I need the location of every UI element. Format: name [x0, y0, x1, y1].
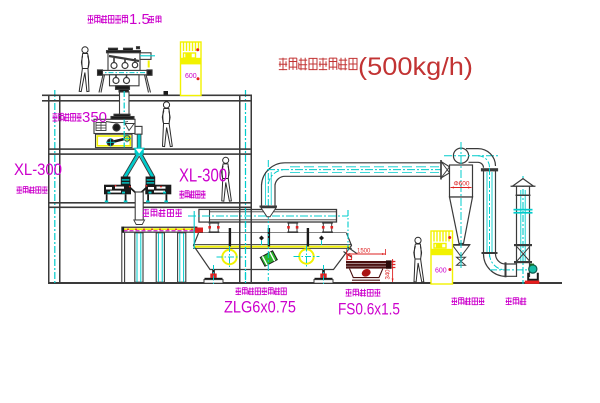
svg-text:XL-300: XL-300: [179, 166, 227, 186]
svg-text:XL-300: XL-300: [14, 160, 62, 179]
svg-text:FS0.6x1.5: FS0.6x1.5: [338, 300, 400, 319]
svg-text:350: 350: [82, 109, 107, 126]
svg-text:1.5: 1.5: [129, 11, 150, 28]
svg-text:1500: 1500: [357, 249, 371, 255]
svg-text:ZLG6x0.75: ZLG6x0.75: [224, 298, 296, 317]
svg-text:600: 600: [185, 73, 197, 80]
svg-text:Φ600: Φ600: [454, 181, 470, 188]
svg-text:(500kg/h): (500kg/h): [358, 53, 473, 81]
svg-text:600: 600: [435, 268, 447, 275]
svg-text:340: 340: [386, 269, 392, 280]
